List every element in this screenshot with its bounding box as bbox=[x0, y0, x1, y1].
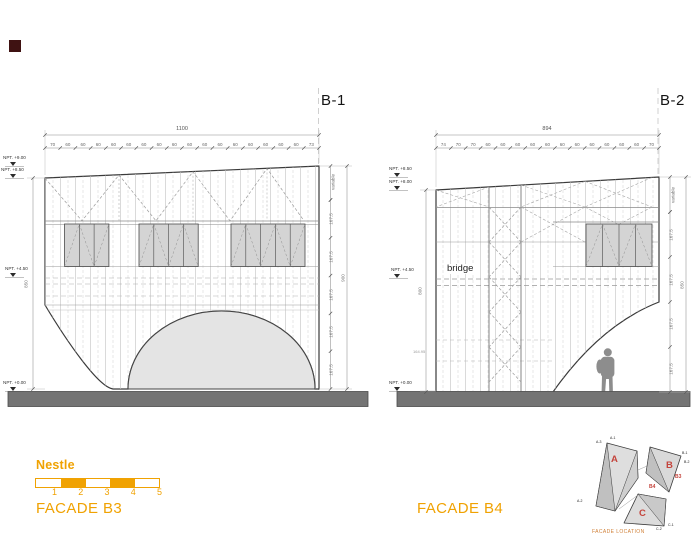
dim-seg-label: 167.5 bbox=[670, 363, 675, 375]
scale-number: 2 bbox=[78, 488, 83, 497]
elevation-linework bbox=[0, 0, 700, 548]
scale-cell bbox=[36, 479, 61, 487]
dim-segment-label: 60 bbox=[243, 143, 258, 148]
ground-bar-left bbox=[8, 392, 368, 407]
dim-segment-label: 73 bbox=[304, 143, 319, 148]
dim-height-left-b3: 850 bbox=[24, 280, 29, 288]
elevation-sheet: B-1 B-2 1100 894 70606060606060606060606… bbox=[0, 0, 700, 548]
dim-segment-label: 60 bbox=[197, 143, 212, 148]
dim-seg-label: 167.5 bbox=[670, 229, 675, 241]
facade-b3-title: FACADE B3 bbox=[36, 501, 122, 516]
dim-seg-label: 167.5 bbox=[330, 326, 335, 338]
ground bbox=[8, 392, 690, 407]
dim-segment-label: 60 bbox=[228, 143, 243, 148]
dim-variable-b4: variable bbox=[671, 186, 676, 202]
dim-segment-label: 70 bbox=[466, 143, 481, 148]
dim-segment-label: 70 bbox=[451, 143, 466, 148]
facade-b3-windows bbox=[65, 224, 306, 267]
dim-seg-label: 167.5 bbox=[670, 318, 675, 330]
dim-variable-b3: variable bbox=[332, 174, 337, 190]
corner-label: C-2 bbox=[656, 528, 662, 532]
bridge-label: bridge bbox=[446, 264, 474, 274]
dim-segments-b3: 706060606060606060606060606060606073 bbox=[45, 143, 319, 148]
dim-seg-label: 167.5 bbox=[670, 274, 675, 286]
dim-height-right-b4: 850 bbox=[680, 281, 685, 289]
elevation-note: 164.95 bbox=[413, 350, 425, 354]
grid-ref-b1: B-1 bbox=[321, 93, 346, 108]
facade-ref-b3: B3 bbox=[675, 475, 681, 480]
volume-label-c: C bbox=[639, 509, 646, 519]
dim-segment-label: 60 bbox=[614, 143, 629, 148]
dim-total-b3: 1100 bbox=[176, 127, 188, 133]
corner-label: A-2 bbox=[577, 500, 582, 504]
dim-segment-label: 60 bbox=[540, 143, 555, 148]
dim-segments-b4: 747070606060606060606060606070 bbox=[436, 143, 659, 148]
dim-segment-label: 60 bbox=[167, 143, 182, 148]
ground-bar-right bbox=[397, 392, 690, 407]
scale-number: 5 bbox=[157, 488, 162, 497]
dim-segment-label: 60 bbox=[289, 143, 304, 148]
scale-number: 3 bbox=[104, 488, 109, 497]
corner-label: B-1 bbox=[682, 452, 687, 456]
facade-b4-mullion-grid bbox=[436, 177, 659, 392]
dim-segment-label: 70 bbox=[45, 143, 60, 148]
scale-cell bbox=[85, 479, 110, 487]
dim-segment-label: 60 bbox=[570, 143, 585, 148]
dim-segment-label: 60 bbox=[273, 143, 288, 148]
volume-label-a: A bbox=[611, 455, 618, 465]
level-label: NPT. +9.00 bbox=[3, 156, 26, 161]
corner-label: A-1 bbox=[610, 437, 615, 441]
level-label: NPT. +0.00 bbox=[3, 381, 26, 386]
level-label: NPT. +8.00 bbox=[389, 180, 412, 185]
dim-segment-label: 60 bbox=[91, 143, 106, 148]
dim-segment-label: 60 bbox=[555, 143, 570, 148]
facade-ref-b4: B4 bbox=[649, 485, 655, 490]
dim-segment-label: 74 bbox=[436, 143, 451, 148]
dim-seg-label: 167.5 bbox=[330, 289, 335, 301]
dim-segment-label: 60 bbox=[629, 143, 644, 148]
level-label: NPT. +8.50 bbox=[389, 167, 412, 172]
dim-segment-label: 60 bbox=[106, 143, 121, 148]
dim-seg-label: 167.5 bbox=[330, 251, 335, 263]
dim-segment-label: 60 bbox=[152, 143, 167, 148]
corner-label: C-1 bbox=[668, 524, 674, 528]
level-label: NPT. +4.50 bbox=[5, 267, 28, 272]
grid-ref-b2: B-2 bbox=[660, 93, 685, 108]
dim-segment-label: 60 bbox=[510, 143, 525, 148]
dim-total-b4: 894 bbox=[542, 127, 551, 133]
scale-numbers: 12345 bbox=[52, 488, 162, 497]
dim-segment-label: 60 bbox=[585, 143, 600, 148]
scale-cell bbox=[110, 479, 135, 487]
brand-wordmark: Nestle bbox=[36, 459, 75, 472]
scale-number: 1 bbox=[52, 488, 57, 497]
dim-seg-label: 167.5 bbox=[330, 213, 335, 225]
facade-b4-title: FACADE B4 bbox=[417, 501, 503, 516]
dim-segment-label: 60 bbox=[60, 143, 75, 148]
location-diagram-title: FACADE LOCATION bbox=[592, 530, 645, 535]
dim-segment-label: 60 bbox=[121, 143, 136, 148]
level-label: NPT. +8.50 bbox=[1, 168, 24, 173]
facade-b4-drawing bbox=[436, 177, 659, 392]
dim-segment-label: 60 bbox=[258, 143, 273, 148]
dim-segment-label: 70 bbox=[644, 143, 659, 148]
dim-height-left-b4: 800 bbox=[418, 287, 423, 295]
dim-seg-label: 167.5 bbox=[330, 364, 335, 376]
volume-label-b: B bbox=[666, 461, 673, 471]
scale-cell bbox=[134, 479, 159, 487]
dim-height-right-b3: 900 bbox=[341, 274, 346, 282]
person-silhouette bbox=[596, 348, 614, 391]
dim-segment-label: 60 bbox=[136, 143, 151, 148]
dim-segment-label: 60 bbox=[75, 143, 90, 148]
corner-label: B-2 bbox=[684, 461, 689, 465]
facade-b3-drawing bbox=[45, 166, 320, 390]
corner-label: A-3 bbox=[596, 441, 601, 445]
scale-number: 4 bbox=[131, 488, 136, 497]
dim-segment-label: 60 bbox=[481, 143, 496, 148]
level-label: NPT. +0.00 bbox=[389, 381, 412, 386]
facade-b4-windows bbox=[586, 224, 652, 267]
level-label: NPT. +4.50 bbox=[391, 268, 414, 273]
scale-cell bbox=[61, 479, 86, 487]
dim-segment-label: 60 bbox=[212, 143, 227, 148]
dim-segment-label: 60 bbox=[525, 143, 540, 148]
dim-segment-label: 60 bbox=[182, 143, 197, 148]
dim-segment-label: 60 bbox=[495, 143, 510, 148]
dim-segment-label: 60 bbox=[599, 143, 614, 148]
